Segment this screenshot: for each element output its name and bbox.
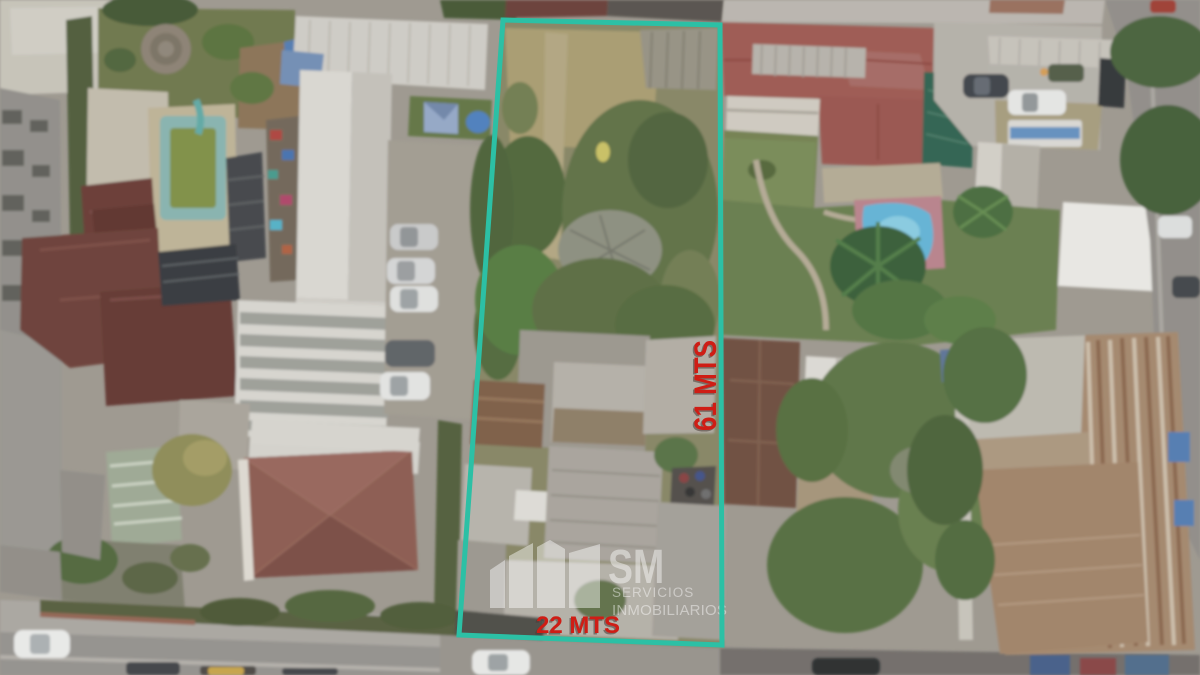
svg-text:22 MTS: 22 MTS <box>536 612 620 639</box>
svg-text:61 MTS: 61 MTS <box>689 340 724 431</box>
